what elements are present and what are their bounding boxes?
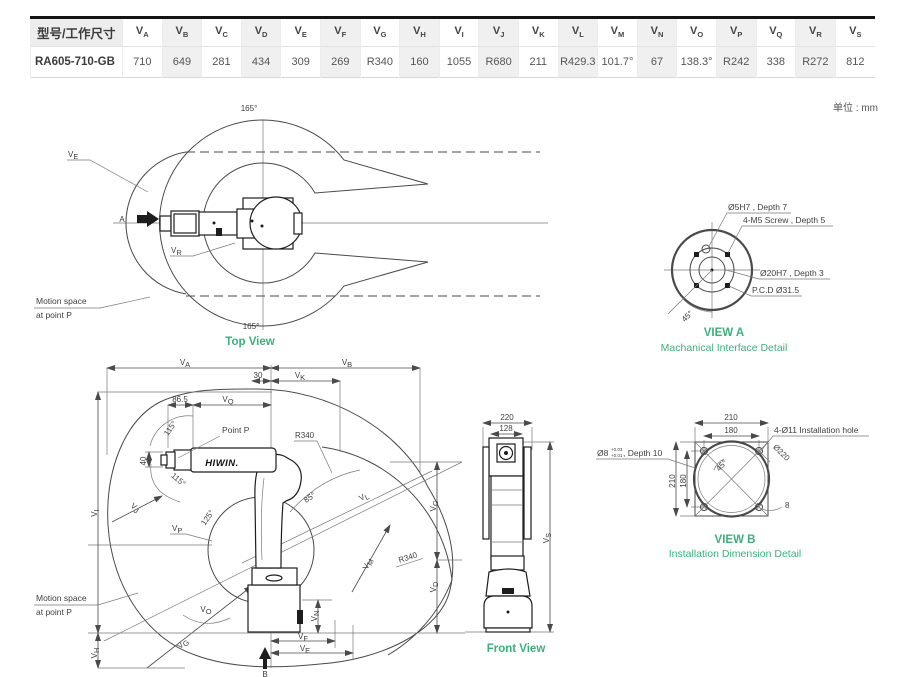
dim-180-top-label: 180 [724,426,738,435]
r340-top-label: R340 [295,431,315,440]
top-view-title: Top View [225,336,274,348]
svg-text:+0.03: +0.03 [611,447,623,452]
fillet-8-label: 8 [785,501,790,510]
va-label: VA [180,358,190,369]
hiwin-logo: HIWIN. [205,458,239,469]
front-view-title: Front View [487,643,546,655]
robot-top-view [160,197,302,249]
view-a-title: VIEW A [704,327,744,339]
dim-128-label: 128 [499,424,513,433]
angle-115-bottom-label: 115° [169,471,187,488]
dim-30-label: 30 [254,371,263,380]
r340-bottom-label: R340 [393,549,423,567]
vc-label: VC [429,500,440,511]
engineering-drawing: 单位 : mm [0,0,900,677]
svg-text:R340: R340 [397,550,418,565]
view-b-detail: 210 180 210 180 45° Ø220 4-Ø11 Installat… [596,413,869,560]
callout-pin-depth: Ø8 +0.03 +0.01 , Depth 10 [596,447,695,468]
angle-125-label: 125° [199,508,216,527]
angle-165-top-label: 165° [241,104,258,113]
dim-40-label: 40 [139,456,148,465]
vl-label: VL [357,490,371,504]
vj-label: VJ [128,501,142,515]
view-b-direction-arrow [259,647,271,669]
dim-210-top-label: 210 [724,413,738,422]
angle-115-top-label: 115° [162,419,179,437]
angle-45-label: 45° [680,309,695,324]
ve-label: VE [68,150,78,161]
spec-sheet-page: 型号/工作尺寸VAVBVCVDVEVFVGVHVIVJVKVLVMVNVOVPV… [0,0,900,677]
svg-text:+0.01: +0.01 [611,453,623,458]
robot-front-view [483,438,532,632]
view-a-direction-arrow [137,211,159,227]
vs-label: VS [542,533,553,543]
vk-label: VK [295,371,305,382]
side-view: HIWIN. VA VB 30 VK 86.5 VQ 115° Point P … [34,358,465,677]
r340-arcs [322,447,452,655]
angle-85-label: 85° [302,490,317,504]
view-a-detail: 45° Ø5H7 , Depth 7 4-M5 Screw , Depth 5 … [661,202,833,354]
view-a-direction-label: A [119,215,125,224]
vd-label: VD [429,581,440,592]
motion-space-label-line1: Motion space [36,296,87,306]
vb-label: VB [342,358,352,369]
robot-side-view: HIWIN. [161,448,303,632]
vn-label: VN [310,611,321,622]
angle-165-bottom-label: 165° [243,322,260,331]
front-view: 220 128 VS Front View [465,413,554,655]
unit-note: 单位 : mm [833,101,878,114]
vq-label: VQ [222,395,233,406]
callout-center-bore: Ø20H7 , Depth 3 [760,268,824,278]
angle-45-viewb-label: 45° [714,458,729,473]
callout-pcd: P.C.D Ø31.5 [752,285,799,295]
dim-86-5-label: 86.5 [172,395,188,404]
view-a-subtitle: Machanical Interface Detail [661,342,788,354]
point-p-label: Point P [222,425,250,435]
dim-180-left-label: 180 [679,474,688,488]
callout-screws: 4-M5 Screw , Depth 5 [743,215,825,225]
view-b-subtitle: Installation Dimension Detail [669,548,801,560]
svg-text:Ø8: Ø8 [597,448,609,458]
vh-label: VH [90,648,101,659]
view-b-direction-label: B [262,670,267,677]
motion-space-side-line1: Motion space [36,593,87,603]
vi-label: VI [90,509,101,516]
dim-210-left-label: 210 [668,474,677,488]
motion-space-side-line2: at point P [36,607,72,617]
top-view: 165° 165° VE A VR Motion space at point … [34,104,548,348]
vp-label: VP [172,524,182,535]
vm-label: VM [361,557,376,572]
callout-installation-hole: 4-Ø11 Installation hole [774,425,859,435]
callout-pin-hole: Ø5H7 , Depth 7 [728,202,787,212]
dim-220-label: 220 [500,413,514,422]
vo-label: VO [200,605,211,616]
vr-label: VR [171,246,182,257]
motion-space-label-line2: at point P [36,310,72,320]
view-b-title: VIEW B [715,534,756,546]
dia-220-label: Ø220 [771,443,792,464]
svg-text:, Depth 10: , Depth 10 [623,448,662,458]
